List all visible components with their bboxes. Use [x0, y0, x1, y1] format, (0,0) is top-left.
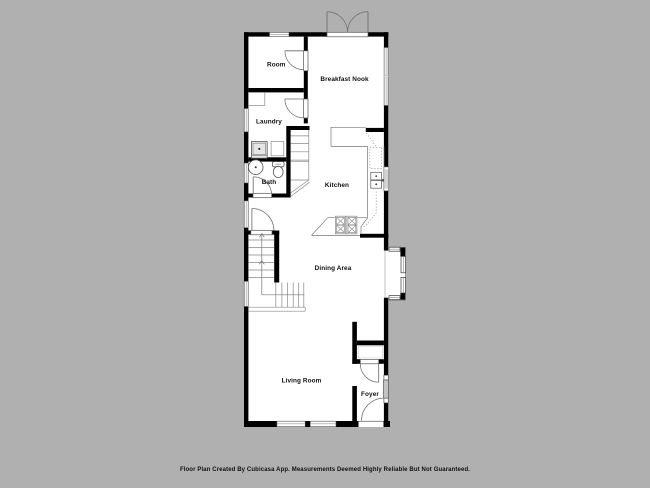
- svg-text:Laundry: Laundry: [256, 118, 282, 125]
- svg-text:Kitchen: Kitchen: [325, 182, 349, 189]
- svg-text:Foyer: Foyer: [361, 391, 379, 398]
- svg-text:Bath: Bath: [262, 179, 277, 186]
- svg-text:Floor Plan Created By Cubicasa: Floor Plan Created By Cubicasa App. Meas…: [180, 467, 470, 473]
- svg-text:Room: Room: [267, 61, 286, 68]
- svg-text:Breakfast Nook: Breakfast Nook: [320, 76, 369, 83]
- svg-text:Living Room: Living Room: [282, 377, 322, 384]
- svg-text:Dining Area: Dining Area: [315, 265, 352, 272]
